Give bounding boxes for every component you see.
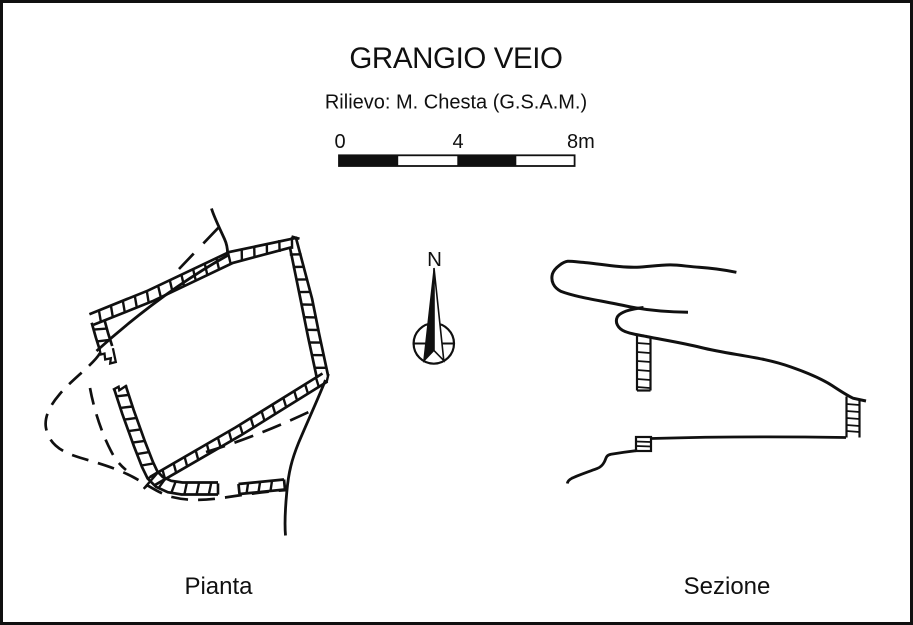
svg-text:Rilievo: M. Chesta (G.S.A.M.): Rilievo: M. Chesta (G.S.A.M.) <box>325 92 587 114</box>
svg-text:N: N <box>427 248 442 271</box>
svg-text:8m: 8m <box>567 131 595 153</box>
svg-text:0: 0 <box>334 131 345 153</box>
svg-text:Sezione: Sezione <box>684 573 771 600</box>
svg-text:Pianta: Pianta <box>184 573 253 600</box>
svg-text:GRANGIO VEIO: GRANGIO VEIO <box>349 42 562 75</box>
svg-text:4: 4 <box>452 131 463 153</box>
